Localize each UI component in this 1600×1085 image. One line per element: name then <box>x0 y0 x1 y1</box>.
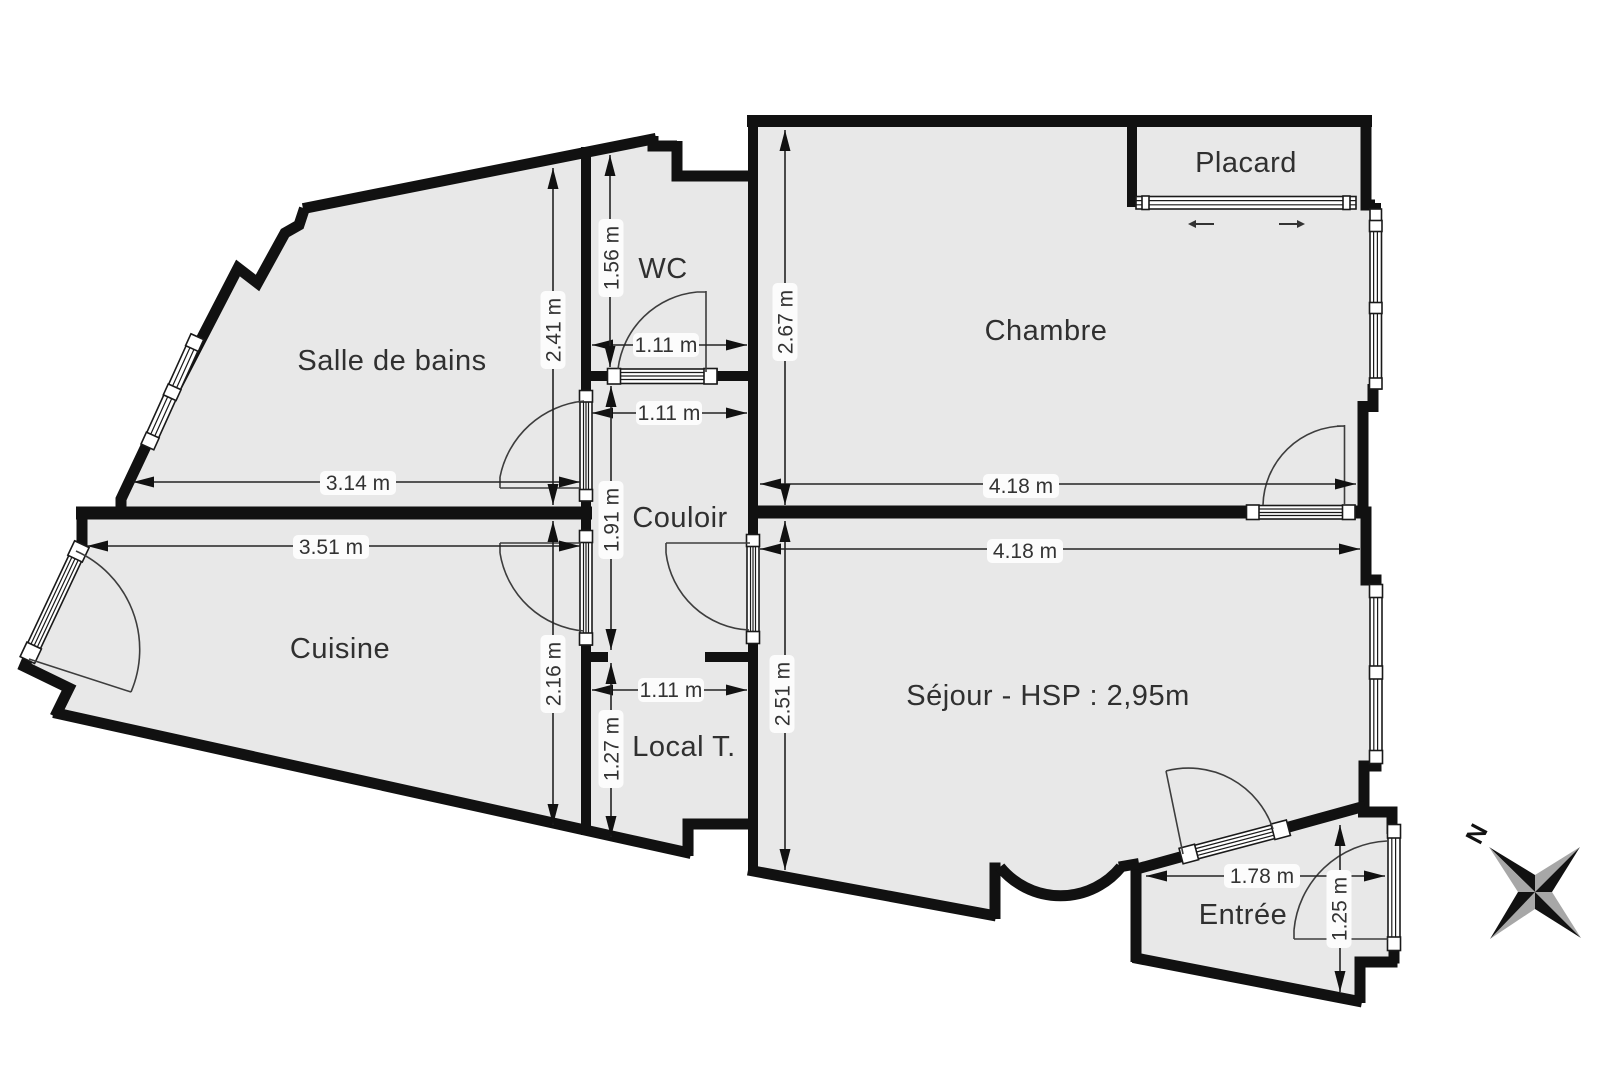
svg-text:1.78 m: 1.78 m <box>1230 865 1294 888</box>
svg-text:4.18 m: 4.18 m <box>989 475 1053 498</box>
svg-text:Entrée: Entrée <box>1199 899 1287 931</box>
svg-text:Couloir: Couloir <box>632 502 727 534</box>
svg-text:Local T.: Local T. <box>632 731 735 763</box>
svg-text:WC: WC <box>638 253 687 285</box>
svg-text:1.11 m: 1.11 m <box>638 402 701 425</box>
svg-text:Placard: Placard <box>1195 147 1297 179</box>
svg-text:1.11 m: 1.11 m <box>640 679 703 702</box>
svg-text:2.41 m: 2.41 m <box>543 298 566 362</box>
svg-text:1.11 m: 1.11 m <box>635 334 698 357</box>
svg-text:3.51 m: 3.51 m <box>299 536 363 559</box>
svg-text:1.25 m: 1.25 m <box>1329 877 1352 941</box>
svg-text:4.18 m: 4.18 m <box>993 540 1057 563</box>
svg-text:2.51 m: 2.51 m <box>772 662 795 726</box>
svg-text:Cuisine: Cuisine <box>290 633 390 665</box>
svg-text:Salle de bains: Salle de bains <box>297 345 486 377</box>
svg-text:2.16 m: 2.16 m <box>543 642 566 706</box>
svg-text:1.56 m: 1.56 m <box>601 226 624 290</box>
svg-text:Chambre: Chambre <box>985 315 1108 347</box>
svg-text:2.67 m: 2.67 m <box>775 290 798 354</box>
svg-text:1.27 m: 1.27 m <box>601 717 624 781</box>
svg-text:Séjour - HSP : 2,95m: Séjour - HSP : 2,95m <box>906 680 1189 712</box>
svg-text:1.91 m: 1.91 m <box>601 488 624 552</box>
svg-text:3.14 m: 3.14 m <box>326 472 390 495</box>
